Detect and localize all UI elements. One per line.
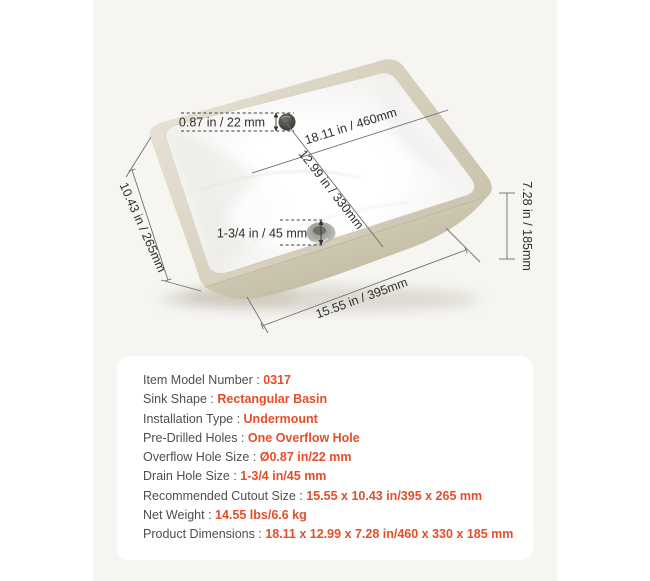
spec-label: Item Model Number: [143, 373, 253, 387]
dim-label-drain-hole: 1-3/4 in / 45 mm: [217, 227, 307, 241]
spec-separator: :: [253, 373, 263, 387]
spec-card: Item Model Number : 0317 Sink Shape : Re…: [117, 356, 533, 560]
dim-label-overflow-hole: 0.87 in / 22 mm: [179, 116, 265, 130]
spec-separator: :: [207, 392, 217, 406]
spec-separator: :: [233, 412, 243, 426]
spec-value: 18.11 x 12.99 x 7.28 in/460 x 330 x 185 …: [265, 527, 513, 541]
spec-value: 0317: [263, 373, 291, 387]
spec-label: Net Weight: [143, 508, 205, 522]
spec-value: Ø0.87 in/22 mm: [260, 450, 352, 464]
sink-illustration: 0.87 in / 22 mm 18.11 in / 460mm 12.99 i…: [93, 0, 557, 352]
spec-value: 15.55 x 10.43 in/395 x 265 mm: [306, 489, 482, 503]
dim-label-side-width: 10.43 in / 265mm: [117, 180, 169, 274]
spec-separator: :: [205, 508, 215, 522]
spec-row-pre-drilled-holes: Pre-Drilled Holes : One Overflow Hole: [143, 429, 523, 448]
spec-separator: :: [249, 450, 259, 464]
spec-label: Drain Hole Size: [143, 469, 230, 483]
spec-separator: :: [296, 489, 306, 503]
spec-label: Overflow Hole Size: [143, 450, 249, 464]
spec-value: 1-3/4 in/45 mm: [240, 469, 326, 483]
overflow-hole: [279, 114, 296, 131]
spec-row-net-weight: Net Weight : 14.55 lbs/6.6 kg: [143, 506, 523, 525]
spec-label: Installation Type: [143, 412, 233, 426]
spec-label: Sink Shape: [143, 392, 207, 406]
product-image-panel: 0.87 in / 22 mm 18.11 in / 460mm 12.99 i…: [93, 0, 557, 581]
spec-row-product-dimensions: Product Dimensions : 18.11 x 12.99 x 7.2…: [143, 525, 523, 544]
spec-value: 14.55 lbs/6.6 kg: [215, 508, 307, 522]
spec-row-drain-hole-size: Drain Hole Size : 1-3/4 in/45 mm: [143, 467, 523, 486]
spec-separator: :: [255, 527, 265, 541]
spec-row-item-model-number: Item Model Number : 0317: [143, 371, 523, 390]
spec-row-overflow-hole-size: Overflow Hole Size : Ø0.87 in/22 mm: [143, 448, 523, 467]
spec-row-installation-type: Installation Type : Undermount: [143, 410, 523, 429]
spec-label: Product Dimensions: [143, 527, 255, 541]
spec-value: Rectangular Basin: [217, 392, 327, 406]
spec-label: Pre-Drilled Holes: [143, 431, 237, 445]
spec-value: One Overflow Hole: [248, 431, 360, 445]
spec-row-recommended-cutout-size: Recommended Cutout Size : 15.55 x 10.43 …: [143, 487, 523, 506]
spec-label: Recommended Cutout Size: [143, 489, 296, 503]
spec-value: Undermount: [244, 412, 318, 426]
spec-separator: :: [237, 431, 247, 445]
spec-row-sink-shape: Sink Shape : Rectangular Basin: [143, 390, 523, 409]
spec-separator: :: [230, 469, 240, 483]
dim-label-height: 7.28 in / 185mm: [520, 181, 534, 271]
